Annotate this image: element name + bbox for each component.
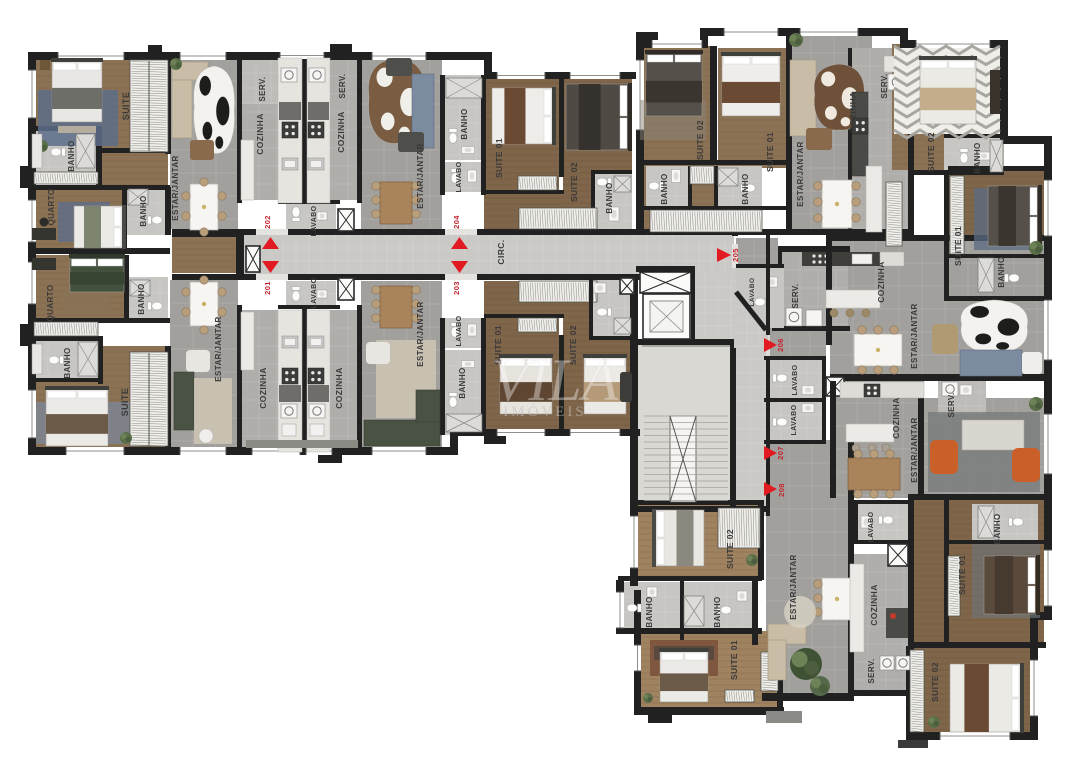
svg-text:LAVABO: LAVABO — [311, 205, 318, 236]
svg-text:COZINHA: COZINHA — [258, 367, 268, 409]
svg-text:COZINHA: COZINHA — [848, 91, 858, 133]
svg-text:LAVABO: LAVABO — [456, 315, 463, 346]
svg-text:SUITE 01: SUITE 01 — [729, 640, 739, 680]
svg-text:SUITE: SUITE — [120, 388, 130, 417]
svg-text:BANHO: BANHO — [460, 108, 469, 139]
svg-text:ESTAR/JANTAR: ESTAR/JANTAR — [416, 143, 425, 208]
svg-text:IMÓVEIS: IMÓVEIS — [503, 403, 587, 420]
svg-text:LAVABO: LAVABO — [311, 277, 318, 308]
svg-text:BANHO: BANHO — [67, 140, 76, 171]
svg-text:ESTAR/JANTAR: ESTAR/JANTAR — [796, 141, 805, 206]
svg-text:SUITE: SUITE — [121, 92, 131, 121]
svg-text:LAVABO: LAVABO — [749, 278, 756, 307]
svg-text:203: 203 — [452, 281, 461, 295]
svg-text:ESTAR/JANTAR: ESTAR/JANTAR — [789, 554, 798, 619]
svg-text:SUITE 01: SUITE 01 — [765, 132, 775, 172]
svg-text:BANHO: BANHO — [605, 182, 614, 213]
svg-text:COZINHA: COZINHA — [891, 397, 901, 439]
svg-text:QUARTO: QUARTO — [47, 189, 56, 226]
svg-text:ESTAR/JANTAR: ESTAR/JANTAR — [910, 417, 919, 482]
svg-text:QUARTO: QUARTO — [46, 285, 55, 322]
svg-text:SUITE 02: SUITE 02 — [926, 132, 936, 172]
svg-text:ESTAR/JANTAR: ESTAR/JANTAR — [171, 155, 180, 220]
svg-text:BANHO: BANHO — [993, 513, 1002, 544]
svg-text:204: 204 — [452, 215, 461, 229]
svg-text:LAVABO: LAVABO — [791, 404, 798, 435]
svg-text:SERV.: SERV. — [867, 658, 876, 683]
svg-text:BANHO: BANHO — [741, 173, 750, 204]
svg-text:SERV.: SERV. — [338, 73, 347, 98]
svg-text:208: 208 — [777, 483, 786, 497]
svg-text:BANHO: BANHO — [458, 367, 467, 398]
svg-text:201: 201 — [263, 281, 272, 295]
svg-text:BANHO: BANHO — [137, 283, 146, 314]
svg-text:SUITE 02: SUITE 02 — [725, 529, 735, 569]
svg-text:SERV.: SERV. — [791, 283, 800, 308]
svg-text:ESTAR/JANTAR: ESTAR/JANTAR — [416, 301, 425, 366]
svg-text:SUITE 01: SUITE 01 — [494, 138, 504, 178]
svg-text:BANHO: BANHO — [139, 195, 148, 226]
svg-text:LAVABO: LAVABO — [456, 161, 463, 192]
svg-text:207: 207 — [776, 446, 785, 460]
svg-text:SUITE 01: SUITE 01 — [957, 555, 967, 595]
svg-text:205: 205 — [731, 248, 740, 262]
svg-text:SERV.: SERV. — [947, 392, 956, 417]
svg-text:SUITE 01: SUITE 01 — [953, 226, 963, 266]
svg-text:BANHO: BANHO — [660, 173, 669, 204]
svg-text:202: 202 — [263, 215, 272, 229]
svg-text:CIRC.: CIRC. — [496, 239, 506, 264]
svg-text:ESTAR/JANTAR: ESTAR/JANTAR — [214, 316, 223, 381]
svg-text:SUITE 02: SUITE 02 — [569, 162, 579, 202]
svg-text:BANHO: BANHO — [645, 596, 654, 627]
svg-text:206: 206 — [776, 338, 785, 352]
svg-text:COZINHA: COZINHA — [255, 113, 265, 155]
svg-text:ESTAR/JANTAR: ESTAR/JANTAR — [910, 303, 919, 368]
svg-text:SUITE 02: SUITE 02 — [930, 662, 940, 702]
svg-text:BANHO: BANHO — [713, 596, 722, 627]
svg-text:BANHO: BANHO — [973, 142, 982, 173]
svg-text:COZINHA: COZINHA — [334, 367, 344, 409]
svg-text:COZINHA: COZINHA — [876, 261, 886, 303]
svg-text:LAVABO: LAVABO — [792, 364, 799, 395]
svg-text:BANHO: BANHO — [997, 256, 1006, 287]
svg-text:SUITE 02: SUITE 02 — [695, 120, 705, 160]
svg-text:COZINHA: COZINHA — [869, 584, 879, 626]
svg-text:SERV.: SERV. — [880, 73, 889, 98]
svg-text:SERV.: SERV. — [258, 76, 267, 101]
svg-text:BANHO: BANHO — [63, 347, 72, 378]
svg-text:COZINHA: COZINHA — [336, 111, 346, 153]
svg-text:LAVABO: LAVABO — [868, 511, 875, 542]
